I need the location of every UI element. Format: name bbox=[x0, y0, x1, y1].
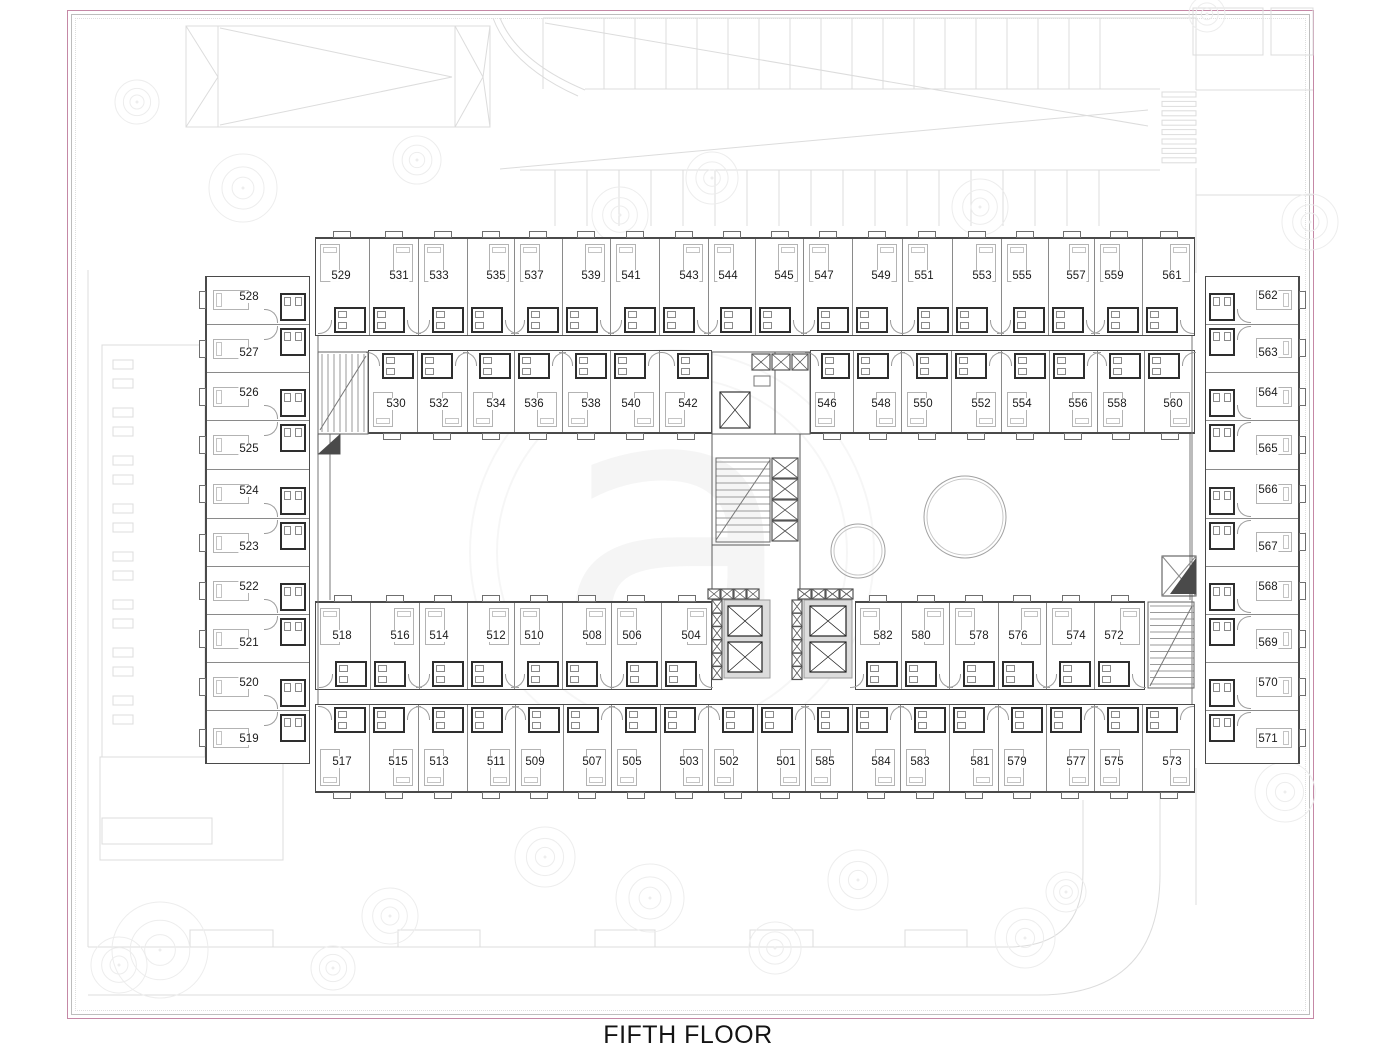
bath-fixture bbox=[1056, 311, 1065, 318]
bath-fixture bbox=[957, 722, 966, 729]
room-cell bbox=[1206, 372, 1298, 420]
pillow-symbol bbox=[818, 418, 832, 424]
pillow-symbol bbox=[1283, 535, 1289, 549]
window-symbol bbox=[333, 792, 351, 799]
pillow-symbol bbox=[216, 680, 222, 694]
room-cell bbox=[1046, 603, 1094, 689]
bath-fixture bbox=[284, 491, 291, 500]
bathroom-symbol bbox=[1013, 307, 1045, 333]
room-number: 522 bbox=[238, 581, 259, 593]
window-symbol bbox=[577, 433, 595, 440]
bath-fixture bbox=[436, 676, 445, 683]
bath-fixture bbox=[338, 311, 347, 318]
room-number: 539 bbox=[580, 270, 601, 282]
window-symbol bbox=[578, 792, 596, 799]
bath-fixture bbox=[921, 311, 930, 318]
pillow-symbol bbox=[1055, 611, 1069, 617]
bath-fixture bbox=[1224, 718, 1231, 727]
bathroom-symbol bbox=[1098, 661, 1130, 687]
pillow-symbol bbox=[216, 293, 222, 307]
bath-fixture bbox=[295, 622, 302, 631]
bathroom-symbol bbox=[471, 707, 503, 733]
pillow-symbol bbox=[323, 777, 337, 783]
bathroom-symbol bbox=[1052, 307, 1084, 333]
bath-fixture bbox=[821, 722, 830, 729]
bath-fixture bbox=[724, 322, 733, 329]
door-arc-symbol bbox=[1237, 405, 1251, 419]
bathroom-symbol bbox=[280, 714, 306, 742]
bath-fixture bbox=[571, 711, 580, 718]
room-number: 567 bbox=[1257, 541, 1278, 553]
room-number: 525 bbox=[238, 443, 259, 455]
bathroom-symbol bbox=[432, 661, 464, 687]
bath-fixture bbox=[295, 683, 302, 692]
bathroom-symbol bbox=[527, 661, 559, 687]
bath-fixture bbox=[1015, 722, 1024, 729]
window-symbol bbox=[677, 433, 695, 440]
bathroom-symbol bbox=[1209, 389, 1235, 417]
window-symbol bbox=[1016, 433, 1034, 440]
room-number: 550 bbox=[912, 398, 933, 410]
window-symbol bbox=[1299, 291, 1306, 309]
window-symbol bbox=[823, 433, 841, 440]
bathroom-symbol bbox=[1209, 522, 1235, 550]
room-number: 502 bbox=[718, 756, 739, 768]
bathroom-symbol bbox=[1107, 307, 1139, 333]
window-symbol bbox=[199, 340, 206, 358]
bath-fixture bbox=[726, 711, 735, 718]
pillow-symbol bbox=[396, 777, 410, 783]
pillow-symbol bbox=[1075, 418, 1089, 424]
bath-fixture bbox=[825, 357, 834, 364]
room-number: 507 bbox=[581, 756, 602, 768]
window-symbol bbox=[723, 231, 741, 238]
room-band-row3_right: 582580578576574572 bbox=[855, 601, 1145, 690]
bath-fixture bbox=[1213, 683, 1220, 692]
bath-fixture bbox=[765, 711, 774, 718]
pillow-symbol bbox=[524, 777, 538, 783]
pillow-symbol bbox=[445, 418, 459, 424]
room-number: 553 bbox=[971, 270, 992, 282]
bathroom-symbol bbox=[518, 353, 550, 379]
door-arc-symbol bbox=[661, 352, 675, 366]
window-symbol bbox=[1061, 792, 1079, 799]
bath-fixture bbox=[860, 322, 869, 329]
bath-fixture bbox=[284, 428, 291, 437]
bath-fixture bbox=[532, 722, 541, 729]
bathroom-symbol bbox=[566, 661, 598, 687]
bath-fixture bbox=[425, 368, 434, 375]
room-cell bbox=[708, 239, 756, 335]
bath-fixture bbox=[1111, 311, 1120, 318]
pillow-symbol bbox=[717, 247, 731, 253]
bath-fixture bbox=[667, 311, 676, 318]
bath-fixture bbox=[920, 357, 929, 364]
bath-fixture bbox=[860, 311, 869, 318]
room-number: 551 bbox=[913, 270, 934, 282]
bathroom-symbol bbox=[280, 583, 306, 611]
door-arc-symbol bbox=[264, 616, 278, 630]
bath-fixture bbox=[436, 722, 445, 729]
pillow-symbol bbox=[910, 418, 924, 424]
door-arc-symbol bbox=[318, 320, 332, 334]
bath-fixture bbox=[338, 722, 347, 729]
bathroom-symbol bbox=[1107, 707, 1139, 733]
door-arc-symbol bbox=[1043, 674, 1057, 688]
window-symbol bbox=[626, 231, 644, 238]
room-cell bbox=[1001, 351, 1050, 432]
room-cell bbox=[952, 239, 1001, 335]
room-number: 573 bbox=[1161, 756, 1182, 768]
window-symbol bbox=[385, 792, 403, 799]
bath-fixture bbox=[284, 718, 291, 727]
bath-fixture bbox=[1111, 711, 1120, 718]
window-symbol bbox=[1299, 436, 1306, 454]
pillow-symbol bbox=[216, 536, 222, 550]
window-symbol bbox=[819, 231, 837, 238]
room-cell bbox=[1206, 566, 1298, 614]
door-arc-symbol bbox=[997, 320, 1011, 334]
pillow-symbol bbox=[216, 342, 222, 356]
room-number: 506 bbox=[621, 630, 642, 642]
bathroom-symbol bbox=[280, 328, 306, 356]
room-cell bbox=[949, 603, 998, 689]
room-number: 548 bbox=[870, 398, 891, 410]
room-cell bbox=[901, 351, 951, 432]
door-arc-symbol bbox=[416, 674, 430, 688]
room-band-row3_left: 518516514512510508506504 bbox=[315, 601, 712, 690]
pillow-symbol bbox=[620, 777, 634, 783]
room-cell bbox=[562, 603, 611, 689]
room-number: 585 bbox=[814, 756, 835, 768]
pillow-symbol bbox=[493, 777, 507, 783]
window-symbol bbox=[820, 792, 838, 799]
bathroom-symbol bbox=[866, 661, 898, 687]
room-number: 579 bbox=[1006, 756, 1027, 768]
pillow-symbol bbox=[396, 247, 410, 253]
pillow-symbol bbox=[976, 777, 990, 783]
bath-fixture bbox=[920, 368, 929, 375]
bathroom-symbol bbox=[624, 307, 656, 333]
pillow-symbol bbox=[1010, 247, 1024, 253]
room-cell bbox=[660, 705, 709, 791]
door-arc-symbol bbox=[264, 695, 278, 709]
room-cell bbox=[1097, 351, 1145, 432]
bath-fixture bbox=[667, 322, 676, 329]
door-arc-symbol bbox=[264, 503, 278, 517]
door-arc-symbol bbox=[610, 674, 624, 688]
bath-fixture bbox=[825, 368, 834, 375]
room-number: 542 bbox=[677, 398, 698, 410]
door-arc-symbol bbox=[366, 352, 380, 366]
bath-fixture bbox=[1113, 357, 1122, 364]
door-arc-symbol bbox=[1180, 320, 1194, 334]
bath-fixture bbox=[284, 587, 291, 596]
bath-fixture bbox=[681, 368, 690, 375]
pillow-symbol bbox=[1103, 777, 1117, 783]
window-symbol bbox=[867, 792, 885, 799]
room-cell bbox=[1001, 239, 1048, 335]
door-arc-symbol bbox=[704, 320, 718, 334]
bath-fixture bbox=[1213, 718, 1220, 727]
room-number: 574 bbox=[1065, 630, 1086, 642]
bath-fixture bbox=[1213, 297, 1220, 306]
door-arc-symbol bbox=[805, 352, 819, 366]
pillow-symbol bbox=[783, 777, 797, 783]
bath-fixture bbox=[570, 322, 579, 329]
window-symbol bbox=[868, 231, 886, 238]
pillow-symbol bbox=[927, 611, 941, 617]
room-number: 501 bbox=[775, 756, 796, 768]
window-symbol bbox=[1110, 792, 1128, 799]
window-symbol bbox=[482, 433, 500, 440]
room-cell bbox=[1049, 351, 1097, 432]
bath-fixture bbox=[579, 368, 588, 375]
bath-fixture bbox=[669, 676, 678, 683]
room-number: 511 bbox=[486, 756, 506, 768]
room-cell bbox=[610, 239, 659, 335]
bathroom-symbol bbox=[665, 661, 697, 687]
room-cell bbox=[1206, 518, 1298, 567]
door-arc-symbol bbox=[264, 422, 278, 436]
bath-fixture bbox=[726, 722, 735, 729]
bath-fixture bbox=[1063, 676, 1072, 683]
bath-fixture bbox=[522, 368, 531, 375]
door-arc-symbol bbox=[559, 352, 573, 366]
pillow-symbol bbox=[589, 777, 603, 783]
room-cell bbox=[853, 351, 901, 432]
bathroom-symbol bbox=[280, 679, 306, 707]
window-symbol bbox=[1299, 678, 1306, 696]
bath-fixture bbox=[436, 311, 445, 318]
window-symbol bbox=[482, 595, 500, 602]
room-cell bbox=[369, 239, 418, 335]
bath-fixture bbox=[1150, 711, 1159, 718]
window-symbol bbox=[383, 433, 401, 440]
door-arc-symbol bbox=[699, 674, 713, 688]
bath-fixture bbox=[957, 711, 966, 718]
bathroom-symbol bbox=[280, 424, 306, 452]
bath-fixture bbox=[1224, 622, 1231, 631]
floor-plan-sheet: a bbox=[0, 0, 1400, 1050]
room-number: 582 bbox=[872, 630, 893, 642]
room-number: 580 bbox=[910, 630, 931, 642]
bathroom-symbol bbox=[1148, 353, 1180, 379]
room-number: 510 bbox=[523, 630, 544, 642]
room-cell bbox=[755, 239, 803, 335]
room-number: 526 bbox=[238, 387, 259, 399]
bath-fixture bbox=[1017, 311, 1026, 318]
window-symbol bbox=[1111, 595, 1129, 602]
bathroom-symbol bbox=[1209, 487, 1235, 515]
bath-fixture bbox=[295, 491, 302, 500]
pillow-symbol bbox=[323, 247, 337, 253]
bathroom-symbol bbox=[1002, 661, 1034, 687]
room-number: 543 bbox=[678, 270, 699, 282]
room-band-east_wing: 562563564565566567568569570571 bbox=[1205, 276, 1300, 764]
bath-fixture bbox=[765, 722, 774, 729]
door-arc-symbol bbox=[1237, 422, 1251, 436]
bath-fixture bbox=[1111, 322, 1120, 329]
door-arc-symbol bbox=[512, 706, 526, 720]
window-symbol bbox=[1063, 231, 1081, 238]
bath-fixture bbox=[629, 722, 638, 729]
bathroom-symbol bbox=[761, 707, 793, 733]
pillow-symbol bbox=[1283, 584, 1289, 598]
room-cell bbox=[467, 603, 515, 689]
bath-fixture bbox=[386, 357, 395, 364]
bath-fixture bbox=[570, 311, 579, 318]
room-cell bbox=[611, 705, 660, 791]
bathroom-symbol bbox=[280, 618, 306, 646]
room-cell bbox=[1206, 662, 1298, 710]
room-cell bbox=[418, 705, 467, 791]
pillow-symbol bbox=[589, 611, 603, 617]
room-number: 575 bbox=[1103, 756, 1124, 768]
pillow-symbol bbox=[1283, 632, 1289, 646]
crosswalk bbox=[1162, 92, 1196, 163]
bath-fixture bbox=[1213, 428, 1220, 437]
bath-fixture bbox=[338, 711, 347, 718]
door-arc-symbol bbox=[319, 674, 333, 688]
pillow-symbol bbox=[1173, 247, 1187, 253]
bath-fixture bbox=[377, 322, 386, 329]
room-cell bbox=[370, 603, 419, 689]
bath-fixture bbox=[284, 393, 291, 402]
pillow-symbol bbox=[686, 777, 700, 783]
room-cell bbox=[610, 351, 659, 432]
pillow-symbol bbox=[476, 418, 490, 424]
door-arc-symbol bbox=[900, 352, 914, 366]
bath-fixture bbox=[967, 665, 976, 672]
door-arc-symbol bbox=[1237, 520, 1251, 534]
room-number: 562 bbox=[1257, 290, 1278, 302]
room-number: 561 bbox=[1161, 270, 1182, 282]
bath-fixture bbox=[338, 322, 347, 329]
bath-fixture bbox=[295, 428, 302, 437]
bath-fixture bbox=[909, 676, 918, 683]
bath-fixture bbox=[1054, 711, 1063, 718]
pillow-symbol bbox=[1010, 418, 1024, 424]
room-number: 547 bbox=[813, 270, 834, 282]
pillow-symbol bbox=[879, 418, 893, 424]
room-band-west_wing: 528527526525524523522521520519 bbox=[205, 276, 310, 764]
door-arc-symbol bbox=[850, 674, 864, 688]
bathroom-symbol bbox=[1209, 328, 1235, 356]
bath-fixture bbox=[531, 676, 540, 683]
room-number: 554 bbox=[1011, 398, 1032, 410]
bath-fixture bbox=[475, 722, 484, 729]
bath-fixture bbox=[860, 711, 869, 718]
bathroom-symbol bbox=[1059, 661, 1091, 687]
bathroom-symbol bbox=[471, 307, 503, 333]
bathroom-symbol bbox=[1050, 707, 1082, 733]
bathroom-symbol bbox=[567, 707, 599, 733]
window-symbol bbox=[1299, 729, 1306, 747]
bathroom-symbol bbox=[280, 293, 306, 321]
door-arc-symbol bbox=[1091, 320, 1105, 334]
room-number: 549 bbox=[870, 270, 891, 282]
window-symbol bbox=[529, 231, 547, 238]
bath-fixture bbox=[475, 665, 484, 672]
room-number: 535 bbox=[485, 270, 506, 282]
bath-fixture bbox=[378, 665, 387, 672]
bath-fixture bbox=[724, 311, 733, 318]
room-band-row2_right: 546548550552554556558560 bbox=[810, 350, 1195, 434]
window-symbol bbox=[918, 433, 936, 440]
window-symbol bbox=[433, 433, 451, 440]
room-cell bbox=[467, 239, 515, 335]
room-cell bbox=[562, 351, 611, 432]
bath-fixture bbox=[436, 711, 445, 718]
window-symbol bbox=[627, 595, 645, 602]
bath-fixture bbox=[483, 357, 492, 364]
room-cell bbox=[418, 239, 467, 335]
bath-fixture bbox=[1113, 368, 1122, 375]
pillow-symbol bbox=[523, 611, 537, 617]
bathroom-symbol bbox=[280, 389, 306, 417]
bath-fixture bbox=[821, 322, 830, 329]
pillow-symbol bbox=[1072, 247, 1086, 253]
pillow-symbol bbox=[909, 777, 923, 783]
door-arc-symbol bbox=[264, 520, 278, 534]
bath-fixture bbox=[378, 676, 387, 683]
door-arc-symbol bbox=[1093, 352, 1107, 366]
window-symbol bbox=[199, 291, 206, 309]
bath-fixture bbox=[1063, 665, 1072, 672]
bath-fixture bbox=[1018, 357, 1027, 364]
door-arc-symbol bbox=[901, 320, 915, 334]
room-number: 545 bbox=[773, 270, 794, 282]
room-cell bbox=[1048, 239, 1094, 335]
bathroom-symbol bbox=[1209, 714, 1235, 742]
bath-fixture bbox=[1224, 491, 1231, 500]
bathroom-symbol bbox=[566, 307, 598, 333]
room-number: 534 bbox=[485, 398, 506, 410]
window-symbol bbox=[771, 231, 789, 238]
bath-fixture bbox=[921, 322, 930, 329]
bath-fixture bbox=[571, 722, 580, 729]
room-cell bbox=[1094, 239, 1142, 335]
room-number: 558 bbox=[1106, 398, 1127, 410]
room-number: 518 bbox=[331, 630, 352, 642]
bath-fixture bbox=[436, 322, 445, 329]
window-symbol bbox=[199, 729, 206, 747]
room-cell bbox=[659, 239, 708, 335]
window-symbol bbox=[1299, 630, 1306, 648]
room-cell bbox=[419, 603, 467, 689]
room-number: 512 bbox=[485, 630, 506, 642]
window-symbol bbox=[965, 792, 983, 799]
pillow-symbol bbox=[540, 418, 554, 424]
bathroom-symbol bbox=[374, 661, 406, 687]
room-number: 569 bbox=[1257, 637, 1278, 649]
room-cell bbox=[661, 603, 713, 689]
window-symbol bbox=[627, 792, 645, 799]
pillow-symbol bbox=[637, 418, 651, 424]
bath-fixture bbox=[1015, 711, 1024, 718]
bathroom-symbol bbox=[953, 707, 985, 733]
pillow-symbol bbox=[1173, 777, 1187, 783]
bathroom-symbol bbox=[916, 353, 948, 379]
bath-fixture bbox=[1111, 722, 1120, 729]
pillow-symbol bbox=[958, 611, 972, 617]
pillow-symbol bbox=[216, 390, 222, 404]
window-symbol bbox=[1299, 533, 1306, 551]
window-symbol bbox=[1013, 792, 1031, 799]
bath-fixture bbox=[377, 711, 386, 718]
pillow-symbol bbox=[1024, 611, 1038, 617]
